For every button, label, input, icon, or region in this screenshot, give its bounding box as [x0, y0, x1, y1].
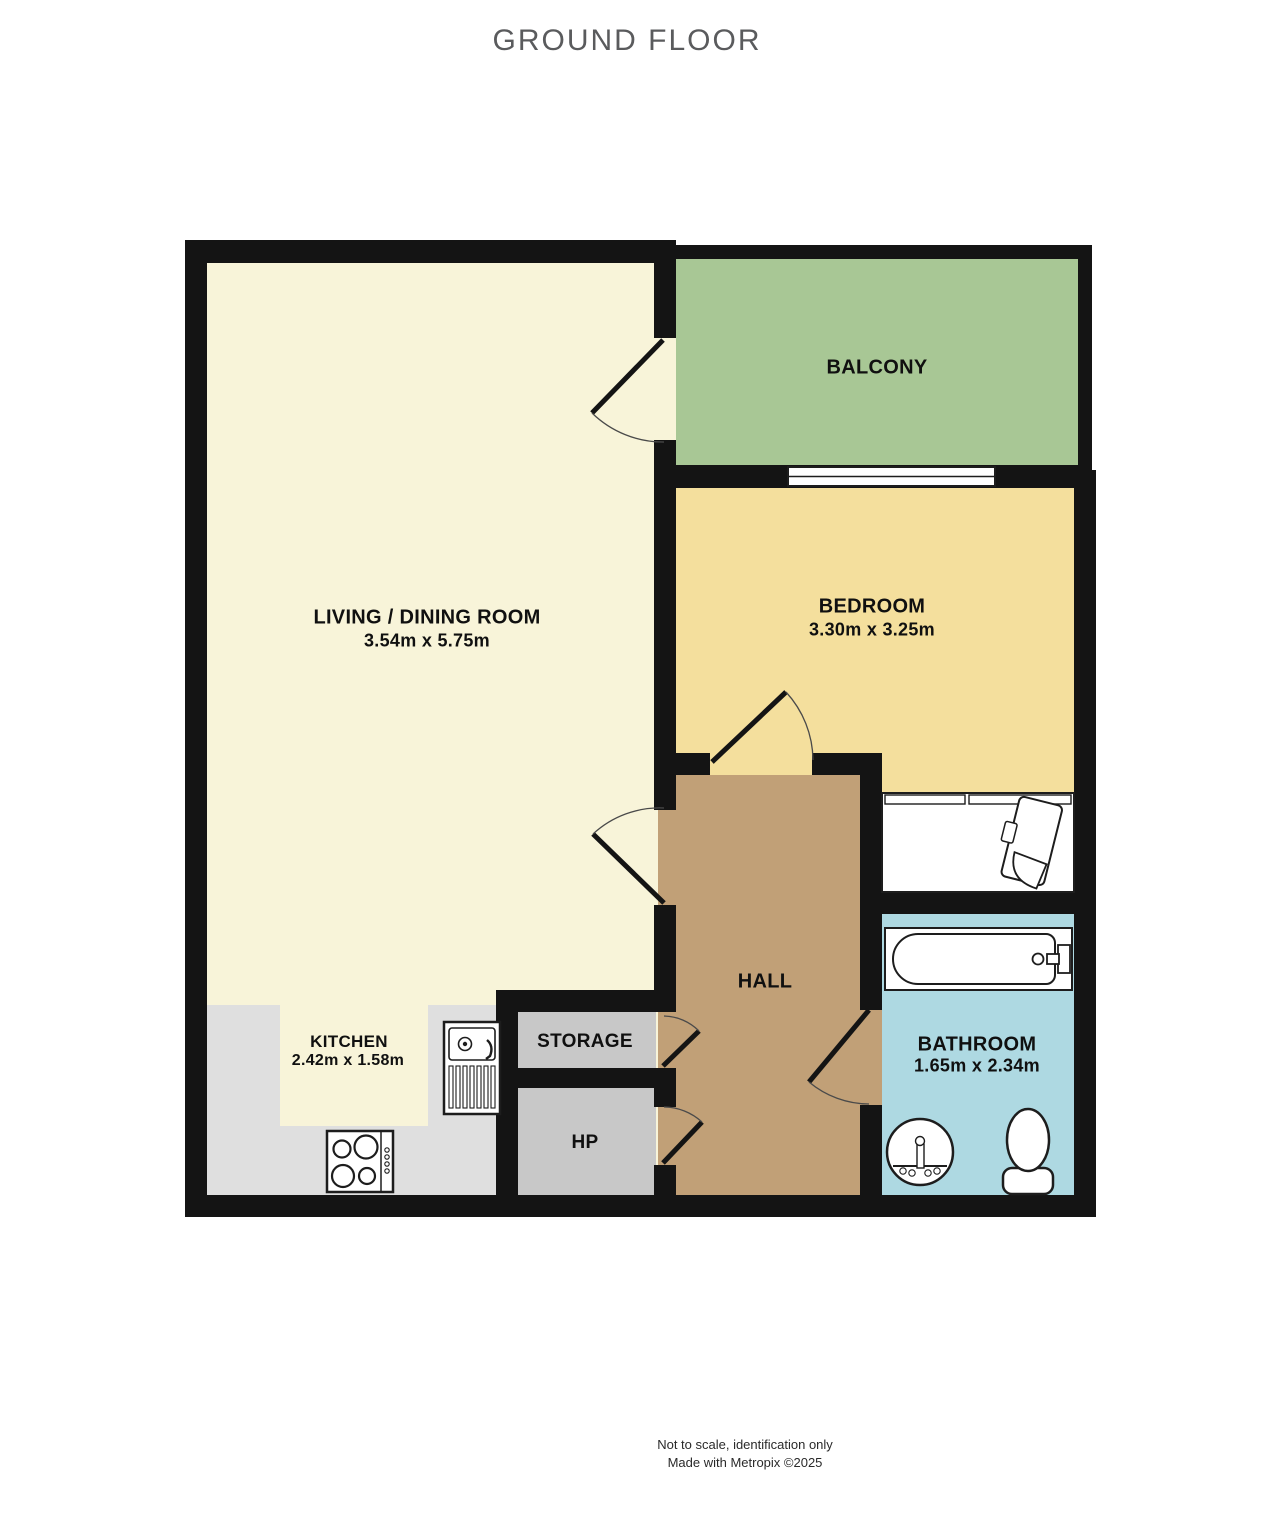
living-room-dimensions: 3.54m x 5.75m [364, 631, 490, 652]
bedroom-dimensions: 3.30m x 3.25m [809, 620, 935, 641]
wardrobe-icon [882, 793, 1074, 892]
living-room-label: LIVING / DINING ROOM [313, 607, 540, 630]
balcony-label: BALCONY [827, 357, 928, 380]
window-icon [788, 467, 995, 486]
floor-plan-drawing [0, 0, 1280, 1519]
kitchen-label: KITCHEN [310, 1032, 388, 1052]
footer-line-2: Made with Metropix ©2025 [657, 1454, 833, 1472]
kitchen-sink-icon [444, 1022, 500, 1114]
toilet-icon [1003, 1109, 1053, 1194]
bathroom-label: BATHROOM [918, 1034, 1037, 1057]
hp-label: HP [572, 1132, 599, 1154]
footer-disclaimer: Not to scale, identification only Made w… [657, 1436, 833, 1472]
storage-label: STORAGE [537, 1031, 633, 1053]
bedroom-label: BEDROOM [819, 596, 926, 619]
hall-label: HALL [738, 971, 793, 994]
floor-plan-page: GROUND FLOOR [0, 0, 1280, 1519]
hob-icon [327, 1131, 393, 1192]
wash-basin-icon [887, 1119, 953, 1185]
kitchen-dimensions: 2.42m x 1.58m [292, 1052, 404, 1070]
bathroom-dimensions: 1.65m x 2.34m [914, 1056, 1040, 1077]
footer-line-1: Not to scale, identification only [657, 1436, 833, 1454]
bathtub-icon [885, 928, 1072, 990]
